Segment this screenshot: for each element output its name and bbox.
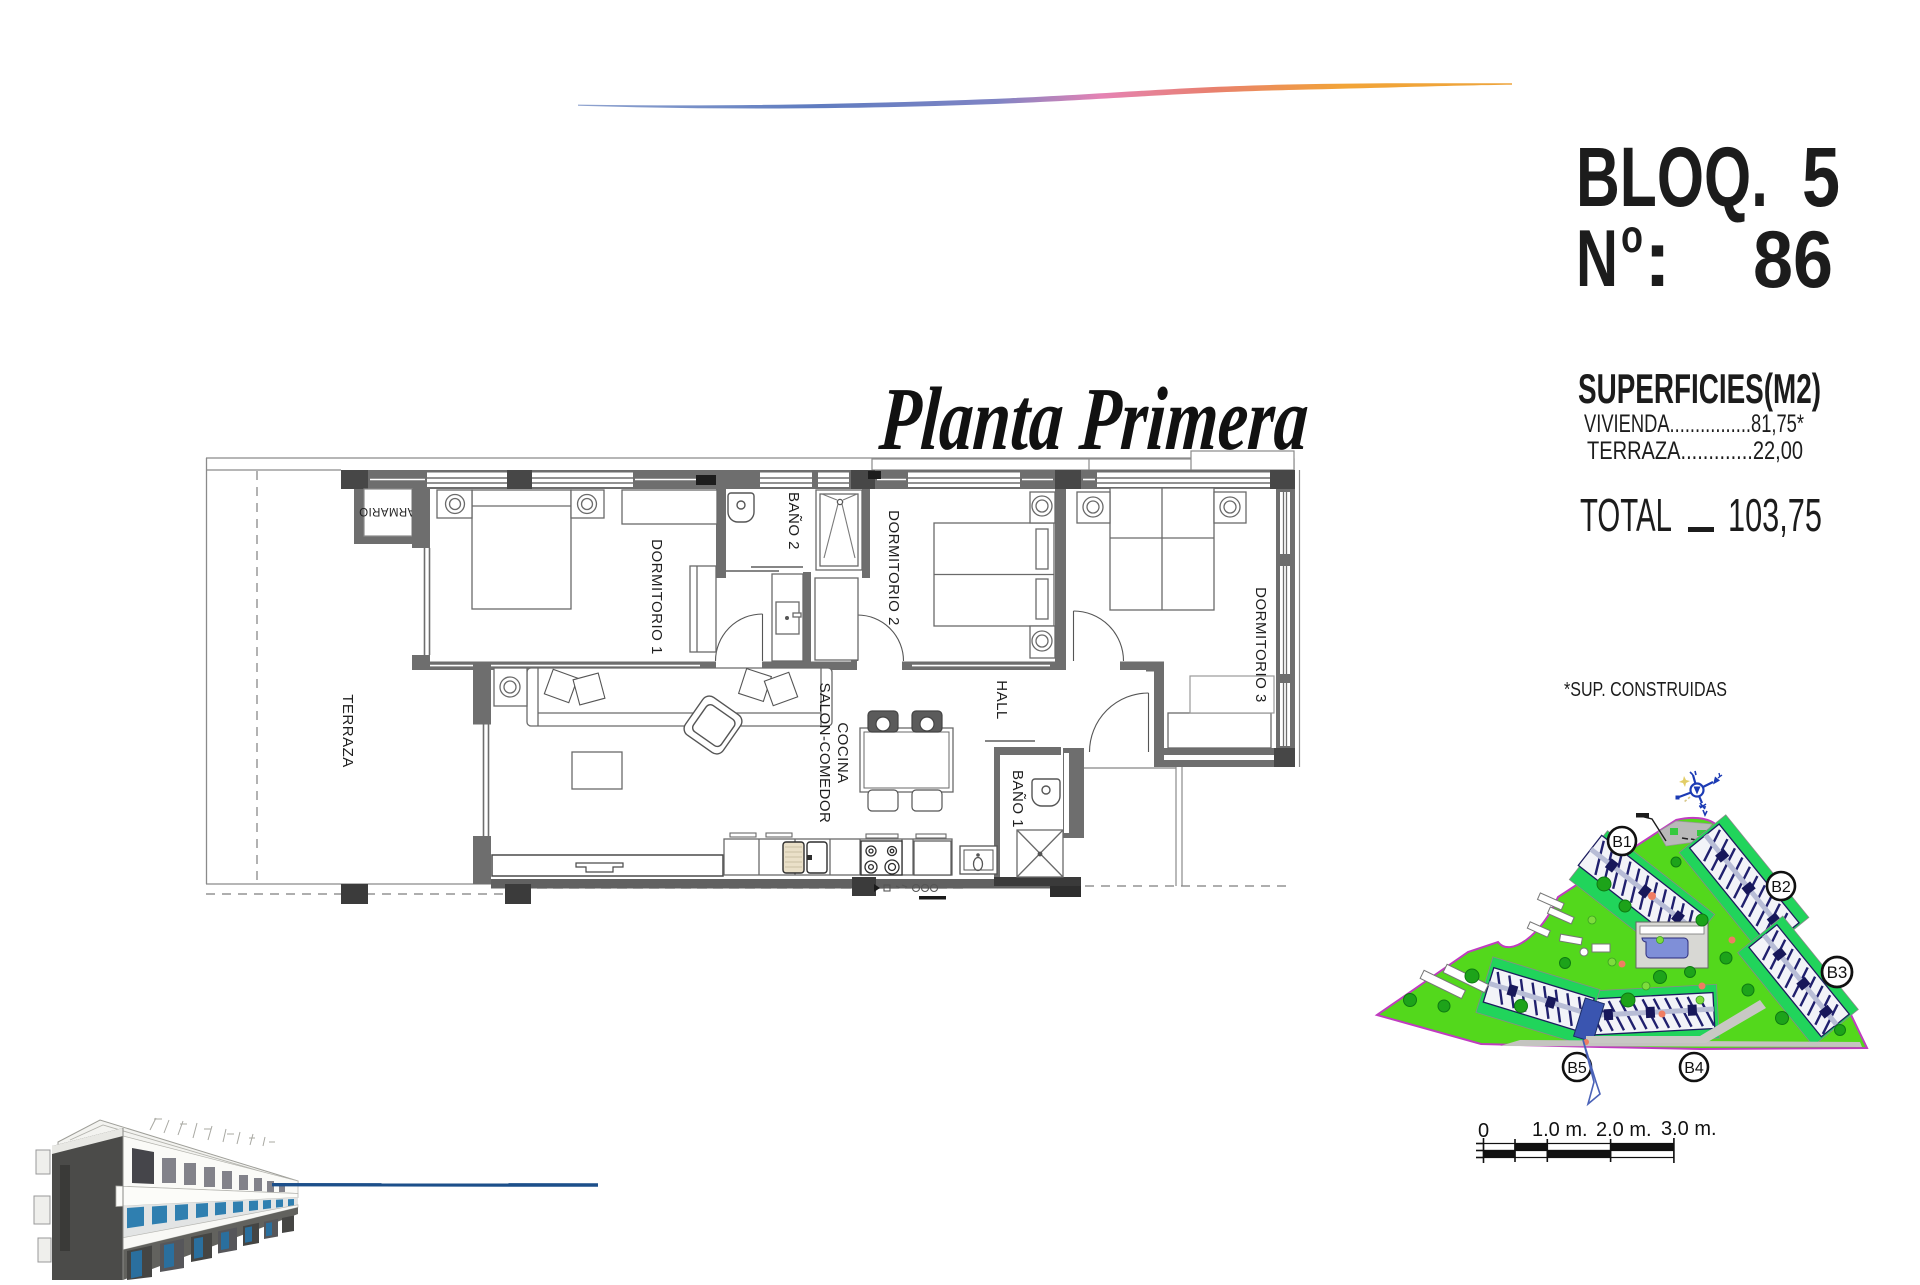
svg-text:1.0 m.: 1.0 m. (1532, 1119, 1588, 1141)
svg-text:BLOQ.: BLOQ. (1576, 130, 1768, 224)
svg-text:B2: B2 (1771, 879, 1791, 896)
svg-text:86: 86 (1753, 215, 1833, 305)
svg-text:B4: B4 (1684, 1060, 1704, 1077)
svg-text:o: o (1621, 210, 1643, 262)
svg-text:ARMARIO: ARMARIO (359, 505, 415, 517)
svg-text:2.0 m.: 2.0 m. (1596, 1119, 1652, 1141)
svg-text:3.0 m.: 3.0 m. (1661, 1118, 1717, 1140)
svg-text:BAÑO 1: BAÑO 1 (1009, 770, 1026, 828)
svg-text:*SUP. CONSTRUIDAS: *SUP. CONSTRUIDAS (1564, 679, 1727, 701)
svg-text:TERRAZA: TERRAZA (339, 694, 356, 768)
svg-text:5: 5 (1802, 130, 1840, 224)
svg-text:VIVIENDA................81,75*: VIVIENDA................81,75* (1584, 410, 1804, 438)
svg-text:DORMITORIO 3: DORMITORIO 3 (1252, 587, 1269, 703)
svg-text:B1: B1 (1612, 834, 1632, 851)
svg-text:103,75: 103,75 (1728, 489, 1822, 541)
svg-text:SALON-COMEDOR: SALON-COMEDOR (816, 683, 833, 824)
svg-text:COCINA: COCINA (834, 722, 851, 783)
svg-text:TERRAZA.............22,00: TERRAZA.............22,00 (1587, 437, 1803, 465)
svg-text:HALL: HALL (993, 680, 1010, 720)
svg-text:DORMITORIO 2: DORMITORIO 2 (885, 510, 902, 626)
svg-text:DORMITORIO 1: DORMITORIO 1 (648, 539, 665, 655)
svg-text:B3: B3 (1827, 963, 1848, 982)
svg-text:TOTAL: TOTAL (1580, 489, 1672, 541)
svg-text:BAÑO 2: BAÑO 2 (785, 492, 802, 550)
svg-text:B5: B5 (1567, 1060, 1587, 1077)
svg-text:SUPERFICIES(M2): SUPERFICIES(M2) (1578, 365, 1821, 412)
svg-text::: : (1644, 214, 1671, 304)
svg-text:N: N (1576, 214, 1618, 304)
